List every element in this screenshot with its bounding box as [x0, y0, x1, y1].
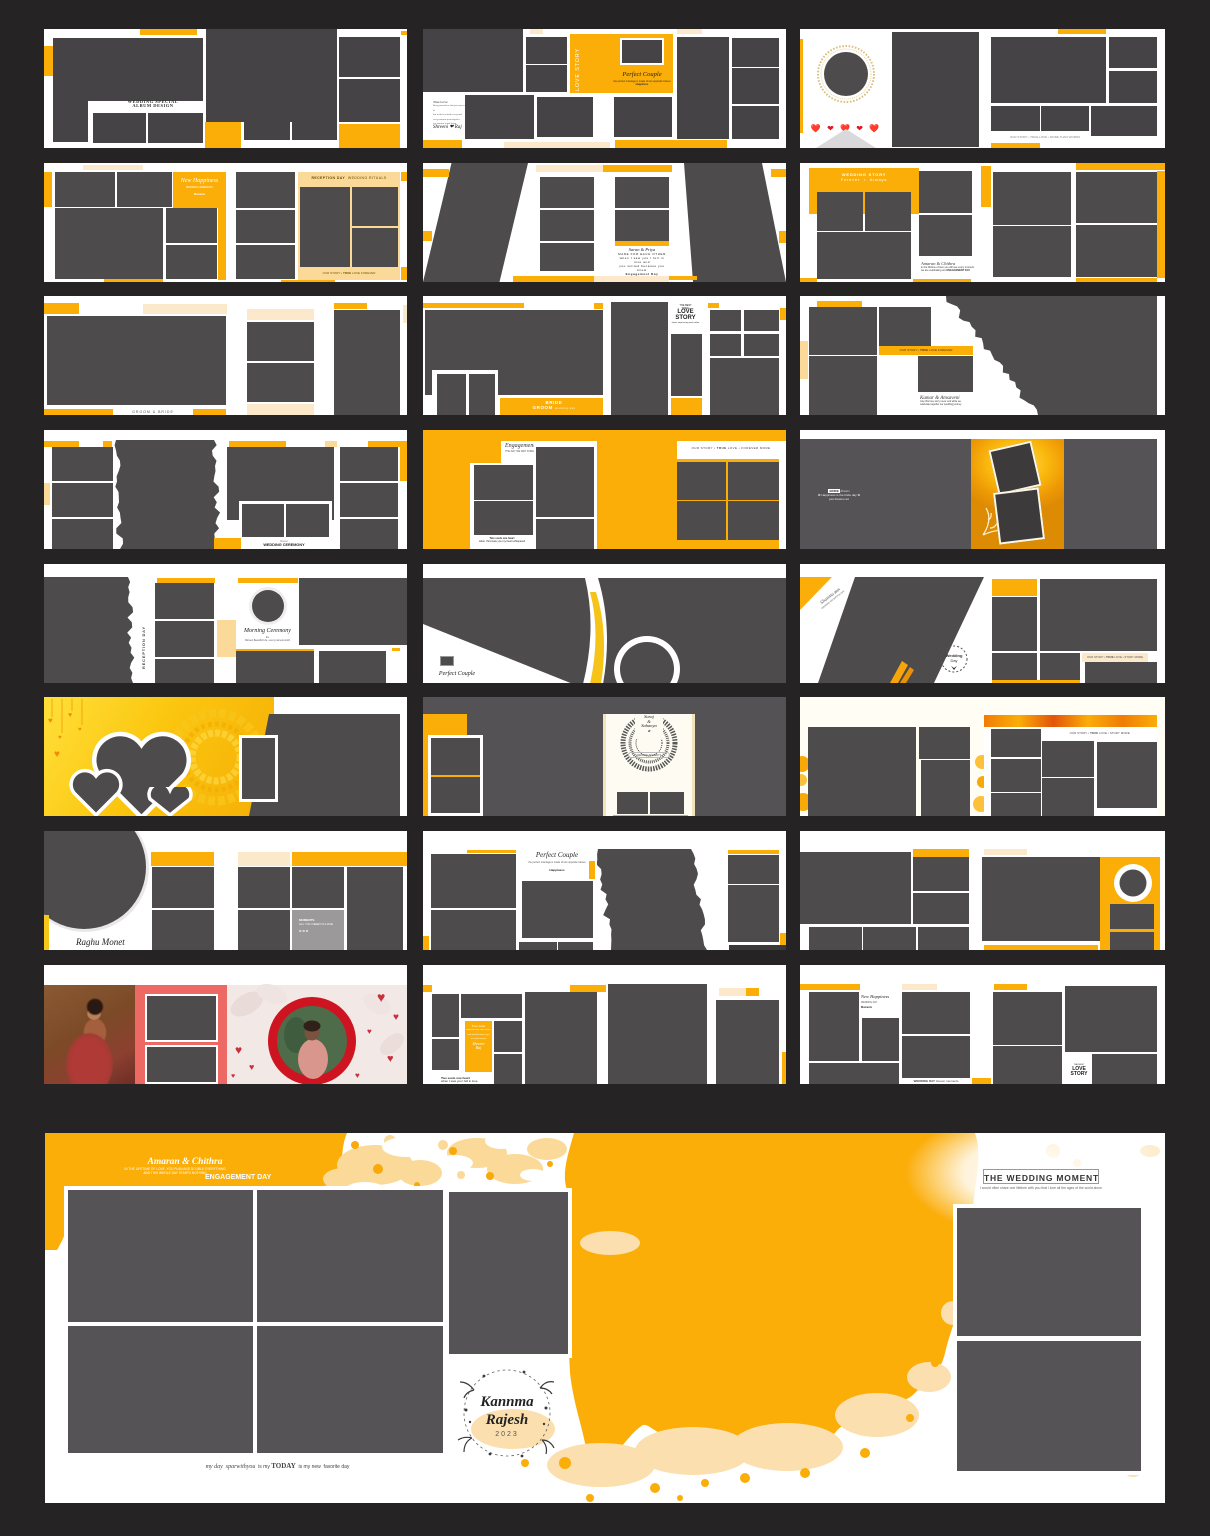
- svg-text:♥: ♥: [58, 735, 62, 741]
- svg-text:♥: ♥: [54, 749, 60, 760]
- svg-text:Day: Day: [950, 658, 957, 663]
- svg-text:♥: ♥: [367, 1027, 372, 1036]
- svg-text:♥: ♥: [48, 716, 53, 725]
- svg-text:♥: ♥: [355, 1071, 360, 1080]
- svg-text:♥: ♥: [235, 1043, 242, 1057]
- svg-text:♥: ♥: [393, 1012, 399, 1023]
- svg-text:♥: ♥: [377, 989, 385, 1005]
- svg-text:Kannma: Kannma: [479, 1394, 534, 1410]
- svg-text:♥: ♥: [231, 1073, 235, 1080]
- svg-text:♥: ♥: [68, 712, 72, 719]
- svg-text:Rajesh: Rajesh: [485, 1412, 529, 1428]
- svg-text:♥: ♥: [387, 1053, 394, 1065]
- svg-text:2023: 2023: [495, 1431, 519, 1438]
- svg-text:♥: ♥: [78, 727, 82, 733]
- svg-text:♥: ♥: [249, 1062, 254, 1072]
